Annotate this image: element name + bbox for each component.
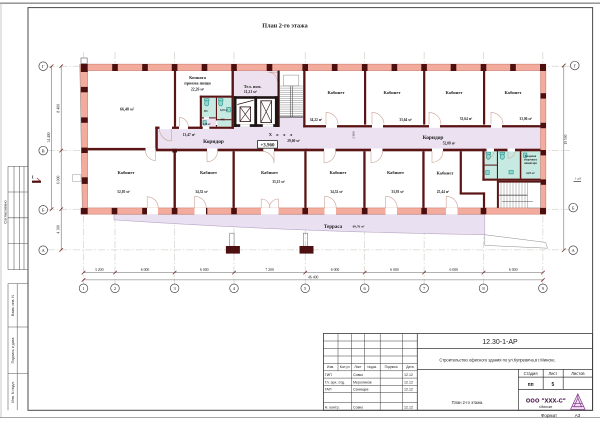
- svg-text:Кол.уч: Кол.уч: [340, 365, 350, 369]
- svg-text:1,78 м²: 1,78 м²: [203, 123, 211, 126]
- svg-text:34,52 м²: 34,52 м²: [330, 190, 343, 194]
- svg-text:Стадия: Стадия: [524, 371, 538, 376]
- svg-text:7 200: 7 200: [265, 268, 274, 272]
- svg-text:Кабинет: Кабинет: [200, 170, 218, 175]
- svg-text:12.12: 12.12: [404, 380, 413, 384]
- svg-text:ГИП: ГИП: [325, 373, 333, 377]
- svg-text:Х о л л: Х о л л: [269, 132, 294, 137]
- svg-text:6,03 м²: 6,03 м²: [526, 172, 534, 175]
- svg-text:Подпись: Подпись: [385, 365, 398, 369]
- svg-text:ГАП: ГАП: [325, 388, 332, 392]
- svg-text:4 100: 4 100: [56, 225, 60, 234]
- svg-text:+3.960: +3.960: [260, 143, 275, 148]
- svg-text:№док.: №док.: [367, 365, 377, 369]
- svg-text:Г: Г: [42, 64, 45, 69]
- svg-text:Г: Г: [573, 63, 576, 68]
- svg-text:19 500: 19 500: [564, 134, 568, 144]
- svg-text:Кабинет: Кабинет: [261, 170, 279, 175]
- svg-text:Строительство офисного здания: Строительство офисного здания по ул.Купр…: [439, 357, 555, 362]
- svg-text:11,21 м²: 11,21 м²: [244, 90, 258, 94]
- svg-text:29,60 м²: 29,60 м²: [287, 139, 300, 143]
- svg-text:33,93 м²: 33,93 м²: [391, 190, 404, 194]
- svg-text:Комната: Комната: [189, 75, 207, 80]
- svg-text:Совко: Совко: [353, 373, 363, 377]
- svg-text:Б: Б: [572, 205, 575, 210]
- svg-text:12.12: 12.12: [404, 373, 413, 377]
- svg-text:66,48 м²: 66,48 м²: [120, 107, 135, 112]
- svg-text:6 000: 6 000: [331, 268, 340, 272]
- svg-text:2 000: 2 000: [352, 131, 356, 139]
- svg-text:6 000: 6 000: [390, 268, 399, 272]
- svg-text:14 400: 14 400: [47, 132, 51, 143]
- svg-text:34,22 м²: 34,22 м²: [310, 118, 323, 122]
- svg-text:Лист: Лист: [354, 365, 362, 369]
- svg-text:12.12: 12.12: [404, 388, 413, 392]
- svg-text:5: 5: [552, 382, 555, 388]
- svg-text:6 000: 6 000: [141, 268, 150, 272]
- svg-text:46 400: 46 400: [308, 275, 319, 279]
- svg-text:52,08 м²: 52,08 м²: [443, 142, 456, 146]
- svg-text:Терраса: Терраса: [324, 225, 343, 230]
- svg-text:Изм.: Изм.: [327, 365, 334, 369]
- svg-text:6 000: 6 000: [450, 268, 459, 272]
- svg-text:инвентаря: инвентаря: [524, 162, 537, 165]
- svg-text:Согласовано: Согласовано: [2, 200, 7, 223]
- svg-text:Инв. N подл.: Инв. N подл.: [11, 381, 15, 402]
- svg-text:Гл. арх. отд.: Гл. арх. отд.: [325, 380, 345, 384]
- svg-text:Кабинет: Кабинет: [504, 90, 522, 95]
- svg-text:Кабинет: Кабинет: [117, 170, 135, 175]
- svg-text:Кабинет: Кабинет: [436, 171, 454, 176]
- svg-text:33,64 м²: 33,64 м²: [460, 117, 473, 121]
- svg-text:6 000: 6 000: [56, 176, 60, 185]
- svg-text:В: В: [42, 148, 45, 153]
- svg-text:22,26 м²: 22,26 м²: [191, 88, 205, 92]
- svg-text:Б: Б: [42, 208, 45, 213]
- svg-text:А3: А3: [575, 413, 581, 418]
- svg-text:33,64 м²: 33,64 м²: [399, 118, 412, 122]
- svg-text:Кабинет: Кабинет: [329, 170, 347, 175]
- svg-text:6 000: 6 000: [200, 268, 209, 272]
- svg-text:Взам. инв. N: Взам. инв. N: [11, 295, 15, 316]
- svg-text:Коридор: Коридор: [423, 135, 444, 141]
- svg-text:13,47 м²: 13,47 м²: [183, 133, 196, 137]
- svg-text:ООО "ХХХ-С": ООО "ХХХ-С": [526, 398, 566, 404]
- svg-text:Кабинет: Кабинет: [387, 170, 405, 175]
- svg-text:План 2-го этажа: План 2-го этажа: [262, 23, 307, 30]
- svg-text:6 000: 6 000: [509, 268, 518, 272]
- svg-text:52,05 м²: 52,05 м²: [117, 190, 130, 194]
- svg-text:25,44 м²: 25,44 м²: [437, 190, 450, 194]
- svg-text:пп: пп: [528, 382, 534, 388]
- svg-text:Дата: Дата: [406, 365, 413, 369]
- svg-text:Листов: Листов: [571, 371, 584, 376]
- svg-text:Лист: Лист: [548, 371, 557, 376]
- svg-text:Кабинет: Кабинет: [327, 90, 345, 95]
- svg-text:12.12: 12.12: [404, 406, 413, 410]
- svg-text:Совко: Совко: [353, 406, 363, 410]
- svg-text:Н. контр.: Н. контр.: [325, 406, 340, 410]
- svg-text:69,76 м²: 69,76 м²: [353, 225, 365, 229]
- svg-text:Коридор: Коридор: [203, 139, 224, 145]
- svg-text:Формат: Формат: [541, 413, 558, 418]
- svg-text:33,06 м²: 33,06 м²: [519, 117, 532, 121]
- svg-text:12.30-1-АР: 12.30-1-АР: [482, 339, 518, 346]
- svg-text:WC: WC: [221, 118, 226, 121]
- svg-text:3 200: 3 200: [95, 268, 104, 272]
- svg-text:8,03 м²: 8,03 м²: [220, 109, 228, 112]
- svg-text:Мероликов: Мероликов: [353, 380, 372, 384]
- svg-text:г.Минске: г.Минске: [539, 405, 553, 409]
- svg-text:Санищев: Санищев: [353, 388, 369, 392]
- svg-text:приема пищи: приема пищи: [184, 80, 211, 85]
- svg-text:34,52 м²: 34,52 м²: [195, 190, 208, 194]
- svg-text:Тел. пом.: Тел. пом.: [244, 84, 262, 89]
- svg-text:Подпись и дата: Подпись и дата: [11, 338, 15, 364]
- svg-text:Кабинет: Кабинет: [445, 90, 463, 95]
- svg-text:План 2-го этажа.: План 2-го этажа.: [452, 400, 484, 405]
- svg-text:WC: WC: [204, 110, 209, 113]
- svg-text:35,15 м²: 35,15 м²: [272, 180, 285, 184]
- svg-text:1 д.9: 1 д.9: [575, 177, 582, 181]
- svg-text:8 400: 8 400: [56, 104, 60, 113]
- svg-text:Кабинет: Кабинет: [383, 90, 401, 95]
